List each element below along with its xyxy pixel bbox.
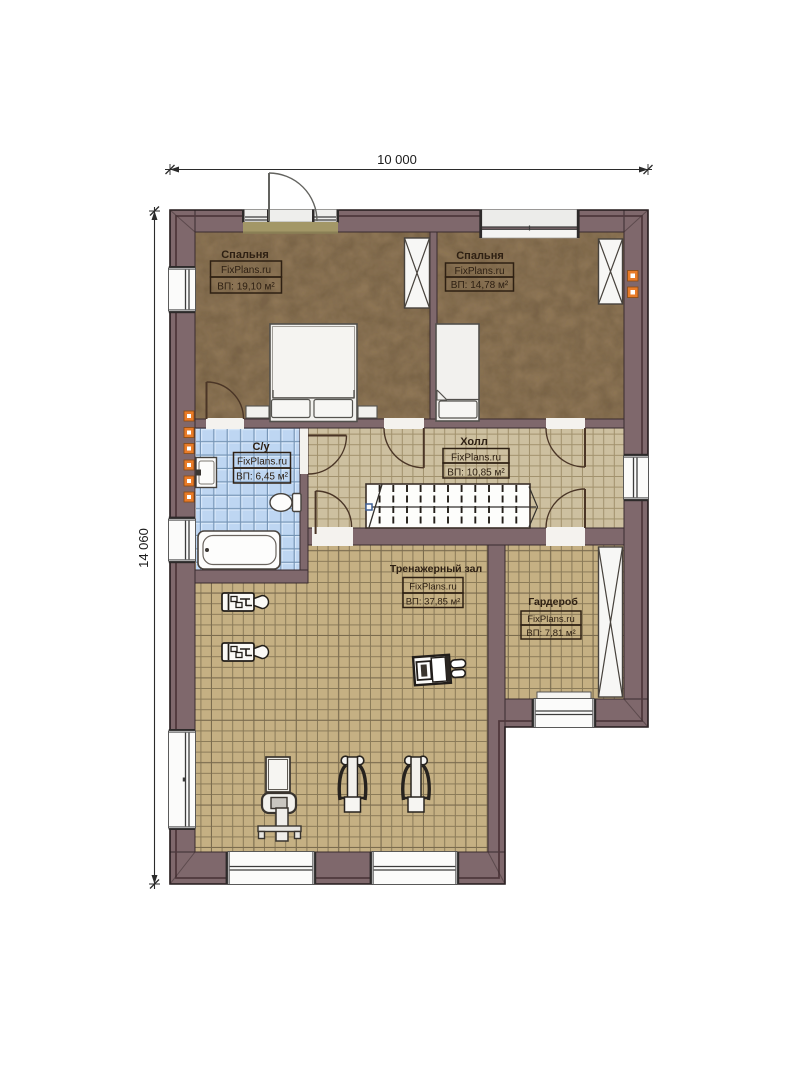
svg-text:FixPlans.ru: FixPlans.ru [454,266,504,277]
svg-text:10 000: 10 000 [377,152,417,167]
svg-text:14 060: 14 060 [136,528,151,568]
svg-text:FixPlans.ru: FixPlans.ru [221,265,271,276]
svg-text:FixPlans.ru: FixPlans.ru [237,457,287,468]
svg-text:Спальня: Спальня [221,249,269,261]
svg-text:ВП: 7,81 м²: ВП: 7,81 м² [526,628,575,639]
svg-text:Спальня: Спальня [456,250,504,262]
svg-text:FixPlans.ru: FixPlans.ru [527,614,575,625]
svg-text:FixPlans.ru: FixPlans.ru [451,453,501,464]
svg-text:ВП: 14,78 м²: ВП: 14,78 м² [451,280,509,291]
svg-text:Холл: Холл [460,436,488,448]
svg-text:С/у: С/у [252,441,270,453]
svg-text:Гардероб: Гардероб [528,596,578,608]
svg-text:Тренажерный зал: Тренажерный зал [390,563,482,575]
svg-text:FixPlans.ru: FixPlans.ru [409,582,457,593]
svg-text:ВП: 37,85 м²: ВП: 37,85 м² [406,597,461,608]
svg-text:ВП: 19,10 м²: ВП: 19,10 м² [217,282,275,293]
svg-text:ВП: 6,45 м²: ВП: 6,45 м² [236,472,289,483]
svg-text:ВП: 10,85 м²: ВП: 10,85 м² [447,468,505,479]
